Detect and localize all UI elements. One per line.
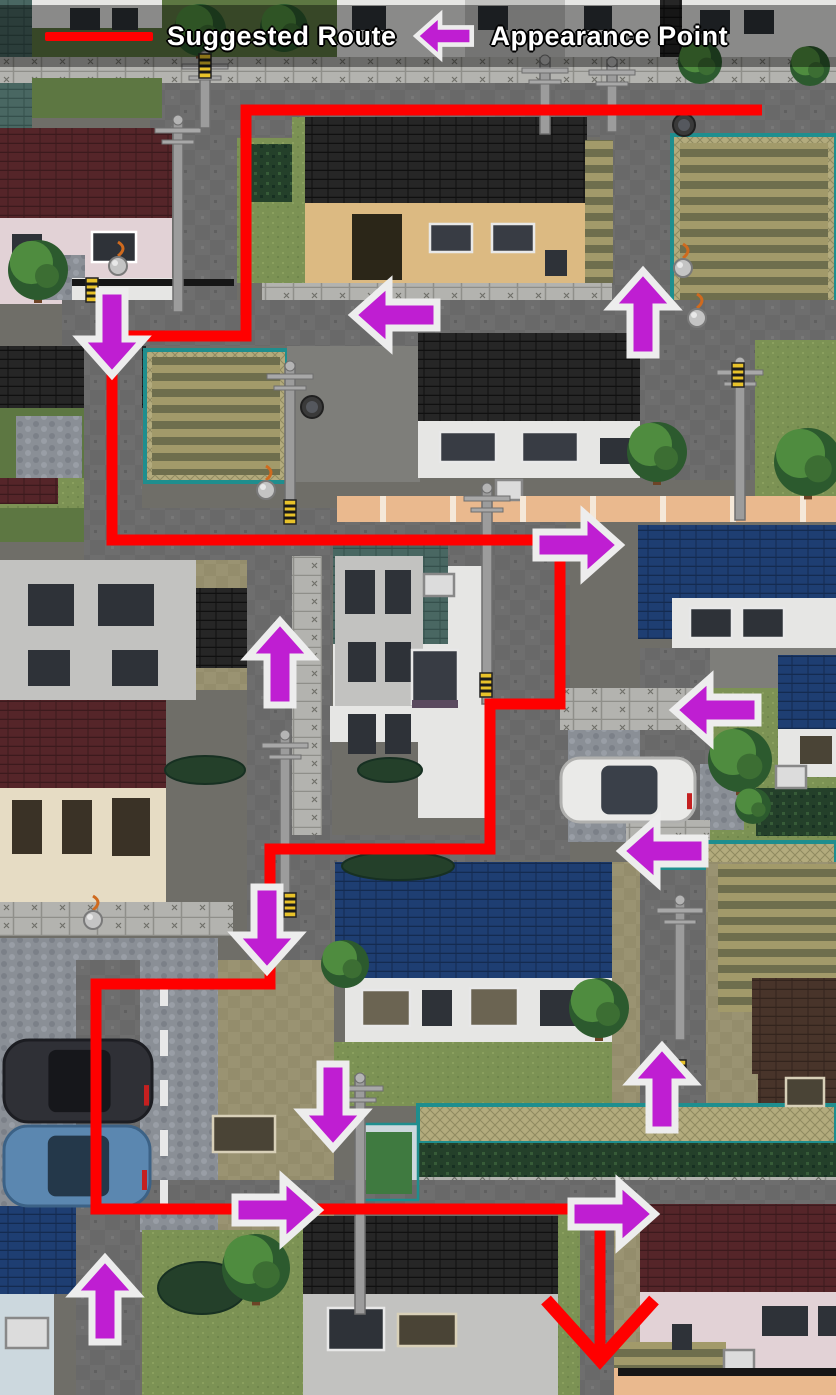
map-block-maroonRoof [640,1204,836,1292]
building-detail [28,584,74,626]
bush [358,758,422,782]
bush [165,756,245,784]
building-detail [6,1318,48,1348]
building-detail [430,224,472,252]
building-detail [800,736,832,764]
bush [342,852,454,880]
building-detail [62,800,92,854]
building-detail [362,990,410,1026]
map-block-field [680,143,828,303]
appearance-arrow-icon [411,8,477,64]
building-detail [762,1306,808,1336]
building-detail [470,988,518,1026]
map-block-maroonRoof [0,128,172,218]
screenshot-root: Suggested Route Appearance Point [0,0,836,1395]
map-block-blackRoof [303,1216,559,1294]
building-detail [160,1130,168,1156]
building-detail [818,1306,836,1336]
building-detail [412,700,458,708]
building-detail [545,250,567,276]
building-detail [98,584,154,626]
building-detail [776,766,806,788]
car-white [561,758,695,822]
building-detail [380,496,386,522]
manhole [301,396,323,418]
building-detail [440,432,496,462]
striped-guard-post [480,673,492,697]
route-line-sample [45,32,153,41]
building-detail [412,650,458,704]
building-detail [348,714,376,754]
building-detail [672,1324,692,1350]
building-detail [348,642,376,682]
building-detail [398,1314,456,1346]
tree [735,788,771,824]
building-detail [450,496,456,522]
building-detail [800,496,806,522]
building-detail [345,570,375,614]
building-detail [424,574,454,596]
map-block-grass [333,1042,640,1106]
building-detail [422,990,452,1026]
building-detail [352,214,402,280]
building-detail [522,432,578,462]
map-block-navyRoof [778,655,836,729]
striped-guard-post [284,500,296,524]
map-block-navyRoof [0,1206,76,1294]
striped-guard-post [732,363,744,387]
building-detail [492,224,534,252]
building-detail [366,1132,412,1194]
building-detail [660,496,666,522]
building-detail [690,608,732,638]
map-block-maroonRoof [0,700,166,788]
map-block-blackRoof [196,588,247,668]
building-detail [28,650,70,686]
building-detail [112,798,150,856]
map-block-blackRoof [418,333,640,421]
building-detail [786,1078,824,1106]
building-detail [12,800,42,854]
map-block-brownRoof [752,978,836,1074]
map-block-hedge [418,1143,836,1177]
building-detail [618,1368,836,1376]
town-map [0,0,836,1395]
tree [321,940,369,988]
map-block-grass [558,1214,580,1395]
car-dark [4,1040,152,1122]
map-block-field [152,357,280,475]
map-block-fence [418,1105,836,1143]
map-block-cobble [16,416,82,482]
building-detail [160,1180,168,1206]
striped-guard-post [284,893,296,917]
map-block-stone [0,902,233,936]
building-detail [520,496,526,522]
building-detail [160,1030,168,1056]
car-blue [4,1126,150,1206]
suggested-route-label: Suggested Route [167,21,397,52]
map-block-field [585,140,613,283]
building-detail [385,642,411,682]
legend-bar: Suggested Route Appearance Point [0,5,836,67]
building-detail [160,1080,168,1106]
building-detail [385,570,411,614]
building-detail [600,438,630,464]
map-block-grassDark [32,78,162,118]
building-detail [385,714,411,754]
manhole [673,114,695,136]
building-detail [742,608,784,638]
appearance-point-label: Appearance Point [491,21,729,52]
map-block-grass [292,117,306,283]
map-block-maroonRoof [0,478,58,504]
building-detail [213,1116,275,1152]
building-detail [112,650,158,686]
